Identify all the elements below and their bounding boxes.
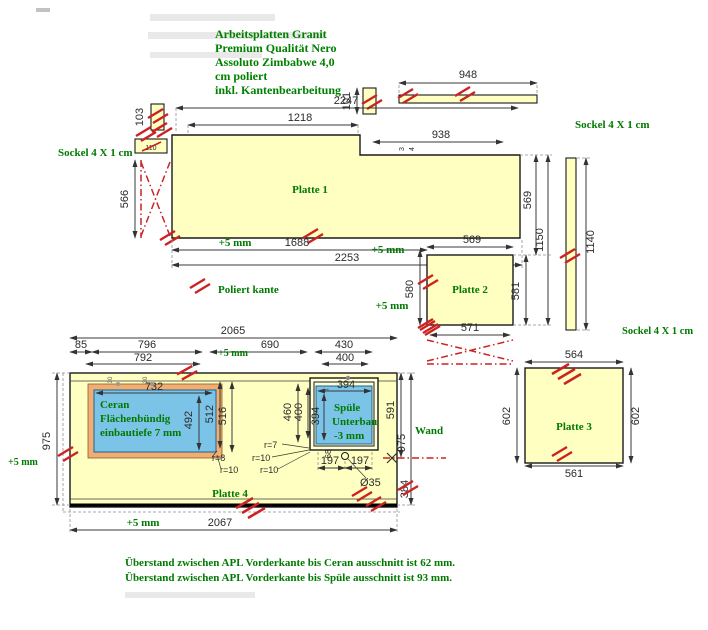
label-plus5-a: +5 mm bbox=[219, 237, 252, 249]
erased-text-remnant bbox=[125, 592, 255, 598]
dim-569v: 569 bbox=[522, 191, 534, 209]
title-line-2: Premium Qualität Nero bbox=[215, 41, 337, 55]
title-line-5: inkl. Kantenbearbeitung bbox=[215, 83, 341, 97]
dim-tick-30b: 30 bbox=[143, 376, 149, 383]
dim-400: 400 bbox=[336, 352, 354, 364]
title-line-1: Arbeitsplatten Granit bbox=[215, 27, 327, 41]
dim-394v: 394 bbox=[310, 407, 322, 425]
platte-1-label: Platte 1 bbox=[292, 184, 328, 196]
drawing-canvas: Arbeitsplatten Granit Premium Qualität N… bbox=[0, 0, 708, 630]
dim-516: 516 bbox=[217, 407, 229, 425]
title-line-3: Assoluto Zimbabwe 4,0 bbox=[215, 55, 335, 69]
title-line-4: cm poliert bbox=[215, 69, 267, 83]
note-ceran-overhang: Überstand zwischen APL Vorderkante bis C… bbox=[125, 556, 455, 569]
dim-690: 690 bbox=[261, 339, 279, 351]
label-wand: Wand bbox=[415, 425, 443, 437]
radius-r7: r=7 bbox=[264, 440, 277, 450]
sockel-strip-right bbox=[566, 158, 576, 330]
dim-580: 580 bbox=[404, 280, 416, 298]
dim-796: 796 bbox=[138, 339, 156, 351]
dim-792: 792 bbox=[134, 352, 152, 364]
dim-564: 564 bbox=[565, 349, 583, 361]
dim-948: 948 bbox=[459, 69, 477, 81]
dim-2253: 2253 bbox=[335, 252, 359, 264]
dim-400v: 400 bbox=[293, 403, 305, 421]
spuele-label-3: -3 mm bbox=[334, 430, 364, 442]
label-plus5-c: +5 mm bbox=[376, 300, 409, 312]
dim-581: 581 bbox=[510, 282, 522, 300]
spuele-label-1: Spüle bbox=[334, 402, 360, 414]
dim-394h: 394 bbox=[337, 379, 355, 391]
dim-68: 68 bbox=[324, 449, 333, 458]
dim-602-right: 602 bbox=[630, 407, 642, 425]
radius-r10c: r=10 bbox=[260, 465, 278, 475]
platte-4-label: Platte 4 bbox=[212, 488, 248, 500]
dim-1150: 1150 bbox=[534, 228, 546, 252]
dim-2067: 2067 bbox=[208, 517, 232, 529]
platte-2-label: Platte 2 bbox=[452, 284, 488, 296]
fixing-dot bbox=[116, 382, 120, 386]
label-sockel-right-top: Sockel 4 X 1 cm bbox=[575, 119, 650, 131]
dim-1218: 1218 bbox=[288, 112, 312, 124]
dim-492: 492 bbox=[183, 411, 195, 429]
dim-2247: 2247 bbox=[334, 95, 358, 107]
dim-tick-30a: 30 bbox=[108, 376, 114, 383]
radius-r10b: r=10 bbox=[252, 453, 270, 463]
stray-mark bbox=[36, 8, 50, 12]
label-plus5-e: +5 mm bbox=[8, 457, 39, 468]
label-sockel-left: Sockel 4 X 1 cm bbox=[58, 147, 133, 159]
radius-r10a: r=10 bbox=[220, 465, 238, 475]
dim-dia35: Ø35 bbox=[360, 477, 381, 489]
polished-edge-mark bbox=[190, 279, 210, 293]
label-plus5-d: +5 mm bbox=[218, 348, 249, 359]
dim-975l: 975 bbox=[41, 432, 53, 450]
label-plus5-f: +5 mm bbox=[127, 517, 160, 529]
dim-2065: 2065 bbox=[221, 325, 245, 337]
dim-571: 571 bbox=[461, 322, 479, 334]
dim-1140: 1140 bbox=[585, 230, 597, 254]
fixing-dot bbox=[150, 382, 154, 386]
erased-text-remnant bbox=[150, 14, 275, 21]
ceran-label-3: einbautiefe 7 mm bbox=[100, 427, 181, 439]
platte-3-label: Platte 3 bbox=[556, 421, 592, 433]
dim-4: 4 bbox=[409, 147, 416, 151]
dim-602-left: 602 bbox=[501, 407, 513, 425]
dim-512: 512 bbox=[204, 405, 216, 423]
fixing-dot bbox=[346, 376, 350, 380]
platte-3 bbox=[525, 368, 623, 463]
wall-dash-line bbox=[141, 162, 170, 236]
dim-938: 938 bbox=[432, 129, 450, 141]
label-sockel-right-bottom: Sockel 4 X 1 cm bbox=[622, 326, 693, 337]
dim-3: 3 bbox=[399, 147, 406, 151]
label-plus5-b: +5 mm bbox=[372, 244, 405, 256]
label-poliert-kante: Poliert kante bbox=[218, 284, 279, 296]
dim-85: 85 bbox=[75, 339, 87, 351]
dim-561: 561 bbox=[565, 468, 583, 480]
dim-566: 566 bbox=[119, 190, 131, 208]
dim-569h: 569 bbox=[463, 234, 481, 246]
dim-1688: 1688 bbox=[285, 237, 309, 249]
dim-103: 103 bbox=[134, 108, 146, 126]
ceran-label-1: Ceran bbox=[100, 399, 129, 411]
dim-430: 430 bbox=[335, 339, 353, 351]
spuele-label-2: Unterbau bbox=[332, 416, 377, 428]
platte-1 bbox=[172, 135, 520, 238]
technical-drawing-countertops: Arbeitsplatten Granit Premium Qualität N… bbox=[0, 0, 708, 630]
dim-591: 591 bbox=[385, 401, 397, 419]
dim-975r: 975 bbox=[396, 434, 408, 452]
ceran-label-2: Flächenbündig bbox=[100, 413, 171, 425]
note-spuele-overhang: Überstand zwischen APL Vorderkante bis S… bbox=[125, 571, 452, 584]
